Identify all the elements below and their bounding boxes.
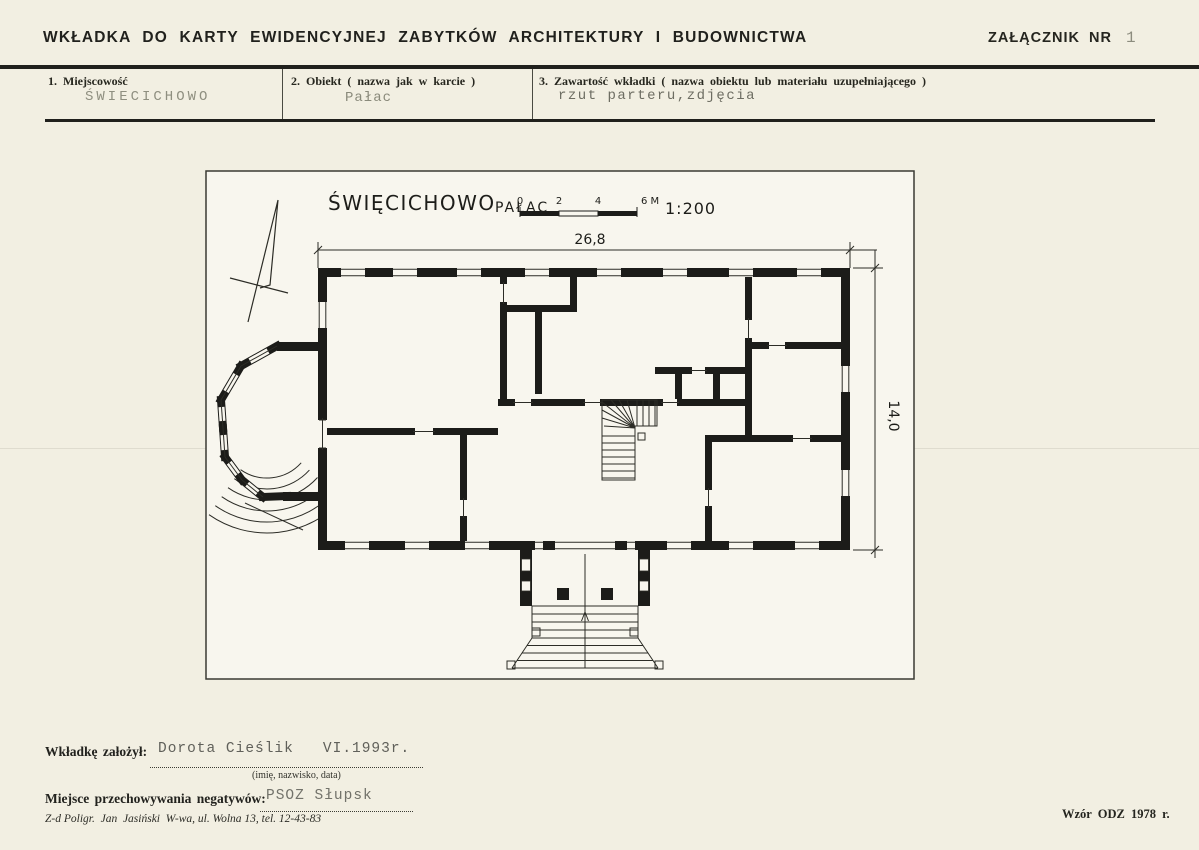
attachment-label: ZAŁĄCZNIK NR bbox=[988, 30, 1112, 46]
negatives-value: PSOZ Słupsk bbox=[266, 789, 373, 804]
founder-hint: (imię, nazwisko, data) bbox=[252, 770, 341, 781]
field-contents-label: 3. Zawartość wkładki ( nazwa obiektu lub… bbox=[539, 74, 1155, 89]
negatives-label: Miejsce przechowywania negatywów: bbox=[45, 791, 266, 807]
template-note: Wzór ODZ 1978 r. bbox=[1062, 807, 1170, 822]
founder-label: Wkładkę założył: bbox=[45, 744, 147, 760]
portico-column bbox=[601, 588, 613, 600]
record-card-page: WKŁADKA DO KARTY EWIDENCYJNEJ ZABYTKÓW A… bbox=[0, 0, 1199, 850]
scale-tick-6: 6 M bbox=[641, 196, 659, 207]
attachment-header: ZAŁĄCZNIK NR1 bbox=[988, 29, 1137, 47]
form-fields-row: 1. Miejscowość ŚWIECICHOWO 2. Obiekt ( n… bbox=[45, 69, 1155, 119]
fields-bottom-rule bbox=[45, 119, 1155, 122]
dimension-height-value: 14,0 bbox=[885, 400, 901, 431]
floor-plan-drawing: ŚWIĘCICHOWO PAŁAC 0 2 4 6 M 1:200 26,8 bbox=[205, 170, 915, 680]
scale-tick-2: 2 bbox=[556, 196, 562, 207]
field-object: 2. Obiekt ( nazwa jak w karcie ) Pałac bbox=[283, 69, 533, 119]
building-interior bbox=[327, 277, 841, 541]
scale-ratio: 1:200 bbox=[665, 199, 716, 218]
scale-tick-4: 4 bbox=[595, 196, 601, 207]
field-locality-value: ŚWIECICHOWO bbox=[85, 90, 282, 104]
field-contents: 3. Zawartość wkładki ( nazwa obiektu lub… bbox=[533, 69, 1155, 119]
dimension-width-value: 26,8 bbox=[574, 232, 605, 248]
attachment-number: 1 bbox=[1126, 29, 1137, 47]
header-rule bbox=[0, 65, 1199, 69]
form-title: WKŁADKA DO KARTY EWIDENCYJNEJ ZABYTKÓW A… bbox=[43, 29, 807, 47]
portico-column bbox=[557, 588, 569, 600]
founder-value: Dorota Cieślik VI.1993r. bbox=[158, 742, 410, 757]
field-locality-label: 1. Miejscowość bbox=[48, 74, 282, 89]
printer-info: Z-d Poligr. Jan Jasiński W-wa, ul. Wolna… bbox=[45, 813, 321, 825]
field-locality: 1. Miejscowość ŚWIECICHOWO bbox=[45, 69, 283, 119]
field-contents-value: rzut parteru,zdjęcia bbox=[558, 89, 1155, 103]
plan-title: ŚWIĘCICHOWO bbox=[328, 191, 496, 215]
scale-tick-0: 0 bbox=[517, 196, 523, 207]
field-object-label: 2. Obiekt ( nazwa jak w karcie ) bbox=[291, 74, 532, 89]
field-object-value: Pałac bbox=[345, 91, 532, 105]
